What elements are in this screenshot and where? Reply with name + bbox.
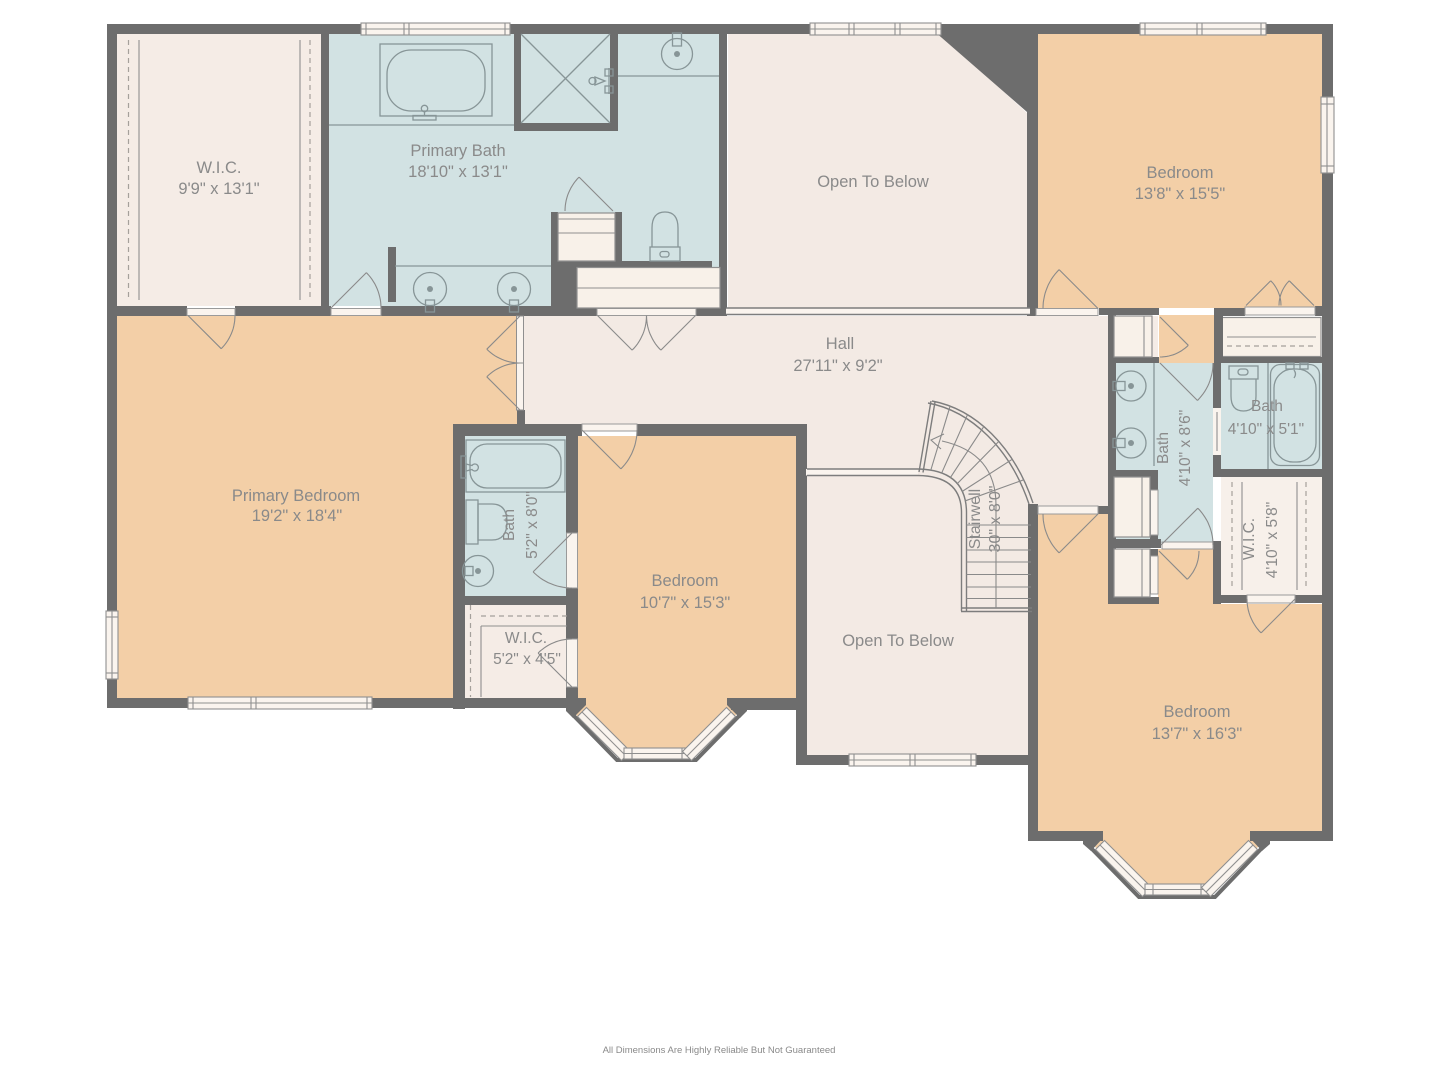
svg-text:4'10" x 5'1": 4'10" x 5'1" bbox=[1228, 421, 1304, 438]
svg-text:Bath: Bath bbox=[1155, 432, 1172, 464]
svg-text:13'7" x 16'3": 13'7" x 16'3" bbox=[1152, 725, 1243, 743]
svg-text:Bath: Bath bbox=[501, 509, 518, 541]
svg-text:W.I.C.: W.I.C. bbox=[1241, 518, 1258, 560]
svg-text:Open To Below: Open To Below bbox=[842, 632, 954, 650]
svg-text:19'2" x 18'4": 19'2" x 18'4" bbox=[252, 507, 343, 525]
svg-text:Stairwell: Stairwell bbox=[967, 489, 984, 549]
svg-text:Bedroom: Bedroom bbox=[652, 572, 719, 590]
svg-text:27'11" x 9'2": 27'11" x 9'2" bbox=[793, 357, 882, 375]
svg-text:9'9" x 13'1": 9'9" x 13'1" bbox=[178, 180, 259, 198]
svg-text:18'10" x 13'1": 18'10" x 13'1" bbox=[408, 163, 508, 181]
svg-text:Bath: Bath bbox=[1251, 398, 1283, 415]
svg-text:Primary Bath: Primary Bath bbox=[410, 142, 505, 160]
svg-text:W.I.C.: W.I.C. bbox=[505, 630, 547, 647]
svg-text:4'10" x 5'8": 4'10" x 5'8" bbox=[1264, 502, 1281, 578]
svg-text:Bedroom: Bedroom bbox=[1147, 164, 1214, 182]
svg-text:30" x 8'0": 30" x 8'0" bbox=[987, 486, 1004, 553]
svg-text:Bedroom: Bedroom bbox=[1164, 703, 1231, 721]
svg-text:13'8" x 15'5": 13'8" x 15'5" bbox=[1135, 185, 1226, 203]
svg-text:W.I.C.: W.I.C. bbox=[197, 159, 242, 177]
svg-text:Primary Bedroom: Primary Bedroom bbox=[232, 487, 360, 505]
svg-text:Hall: Hall bbox=[826, 335, 854, 353]
svg-text:4'10" x 8'6": 4'10" x 8'6" bbox=[1177, 410, 1194, 486]
svg-text:Open To Below: Open To Below bbox=[817, 173, 929, 191]
svg-text:All Dimensions Are Highly Reli: All Dimensions Are Highly Reliable But N… bbox=[603, 1045, 836, 1056]
svg-text:5'2" x 8'0": 5'2" x 8'0" bbox=[524, 491, 541, 559]
svg-text:5'2" x 4'5": 5'2" x 4'5" bbox=[493, 651, 561, 668]
svg-text:10'7" x 15'3": 10'7" x 15'3" bbox=[640, 594, 731, 612]
